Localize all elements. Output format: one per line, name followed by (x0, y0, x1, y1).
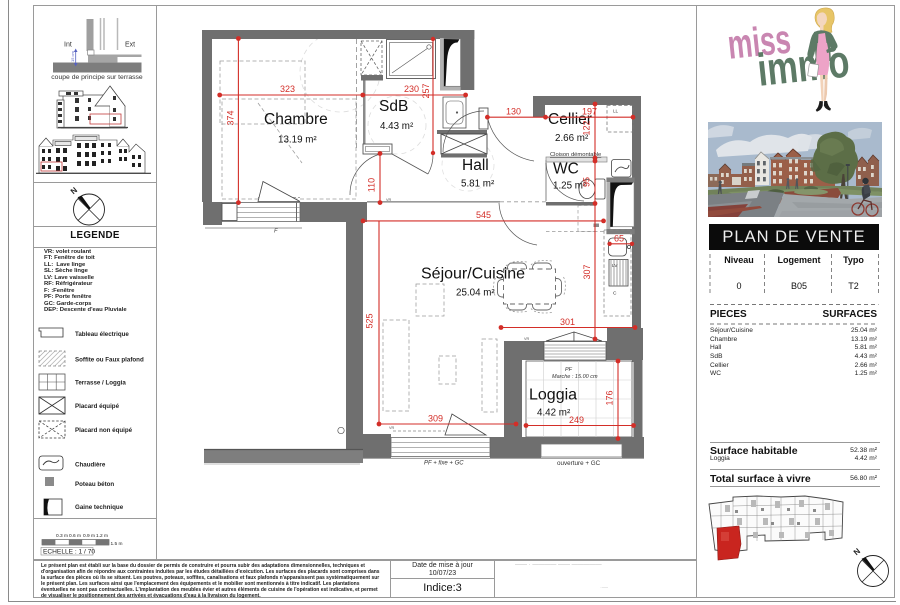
svg-text:coupe de principe sur terrasse: coupe de principe sur terrasse (51, 74, 143, 81)
svg-text:Marche : 15.00 cm: Marche : 15.00 cm (552, 374, 598, 380)
svg-text:230: 230 (404, 84, 419, 94)
svg-text:SdB: SdB (379, 98, 408, 115)
svg-text:5.81 m²: 5.81 m² (461, 179, 495, 190)
svg-text:0.6 m: 0.6 m (69, 533, 81, 539)
svg-text:PF: PF (565, 367, 573, 373)
svg-text:545: 545 (476, 210, 491, 220)
svg-text:Chaudière: Chaudière (75, 462, 106, 469)
svg-text:301: 301 (560, 317, 575, 327)
svg-text:Loggia: Loggia (529, 387, 577, 404)
svg-text:1.2 m: 1.2 m (96, 533, 108, 539)
svg-text:PF + fixe + GC: PF + fixe + GC (424, 461, 464, 467)
svg-text:25.04 m²: 25.04 m² (456, 288, 495, 299)
svg-text:Soffite ou Faux plafond: Soffite ou Faux plafond (75, 357, 144, 364)
svg-text:15 cm: 15 cm (70, 50, 75, 62)
svg-text:Gaine technique: Gaine technique (75, 504, 124, 511)
svg-text:Ext: Ext (125, 42, 135, 49)
svg-text:VR: VR (389, 426, 395, 430)
svg-text:1.5 m: 1.5 m (111, 541, 123, 547)
svg-text:VR: VR (386, 198, 392, 202)
svg-text:ouverture + GC: ouverture + GC (557, 460, 601, 467)
svg-text:N: N (69, 185, 79, 196)
svg-text:374: 374 (226, 110, 236, 125)
svg-text:Séjour/Cuisine: Séjour/Cuisine (421, 266, 525, 283)
svg-text:0.3 m: 0.3 m (56, 533, 68, 539)
svg-text:Hall: Hall (462, 157, 489, 174)
svg-text:ECHELLE : 1 / 70: ECHELLE : 1 / 70 (43, 549, 95, 556)
svg-text:525: 525 (365, 313, 375, 328)
svg-text:95: 95 (582, 177, 592, 187)
svg-text:Poteau béton: Poteau béton (75, 481, 114, 488)
svg-text:immo: immo (755, 35, 852, 96)
svg-text:Tableau électrique: Tableau électrique (75, 331, 129, 338)
svg-text:N: N (852, 546, 862, 557)
svg-text:C: C (613, 291, 617, 297)
svg-text:110: 110 (367, 178, 377, 192)
svg-text:13.19 m²: 13.19 m² (278, 135, 317, 146)
svg-text:WC: WC (553, 161, 579, 178)
svg-text:LL: LL (613, 109, 619, 114)
svg-text:VR: VR (524, 337, 530, 341)
svg-text:Placard non équipé: Placard non équipé (75, 427, 133, 434)
svg-text:LV: LV (612, 263, 618, 269)
svg-text:4.43 m²: 4.43 m² (380, 121, 414, 132)
svg-text:F: F (274, 229, 278, 235)
svg-text:4.42 m²: 4.42 m² (537, 408, 571, 419)
svg-text:130: 130 (506, 107, 521, 117)
svg-text:309: 309 (428, 414, 443, 424)
svg-text:249: 249 (569, 415, 584, 425)
svg-text:65: 65 (614, 234, 624, 244)
svg-text:Int: Int (64, 42, 72, 49)
svg-text:0.9 m: 0.9 m (83, 533, 95, 539)
svg-text:197: 197 (582, 107, 597, 117)
svg-text:257: 257 (421, 83, 431, 98)
svg-text:Placard équipé: Placard équipé (75, 403, 120, 410)
svg-text:323: 323 (280, 84, 295, 94)
svg-text:Terrasse / Loggia: Terrasse / Loggia (75, 380, 126, 387)
svg-text:Chambre: Chambre (264, 111, 328, 128)
svg-text:122: 122 (582, 120, 592, 135)
svg-text:307: 307 (582, 264, 592, 279)
svg-text:176: 176 (605, 390, 615, 405)
